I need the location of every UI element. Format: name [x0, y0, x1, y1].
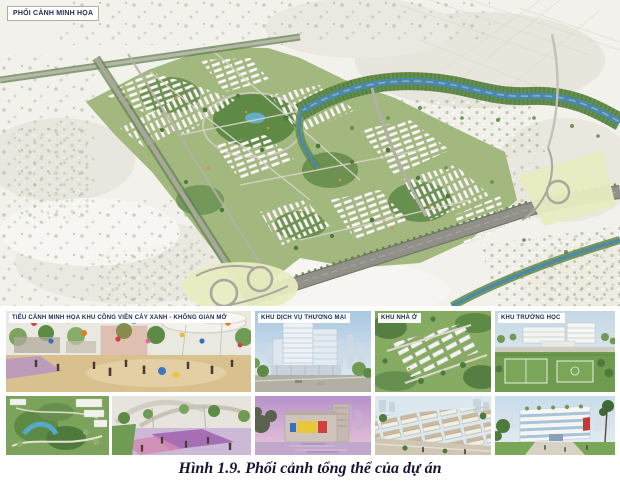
panel-label-commercial: KHU DỊCH VỤ THƯƠNG MẠI: [258, 313, 350, 323]
parks-playground-illustration: [6, 311, 251, 392]
commercial-towers-image: [255, 311, 371, 392]
school-campus-illustration: [495, 311, 615, 392]
housing-street-image: [375, 396, 491, 455]
masterplan-aerial-render: [0, 0, 620, 306]
masterplan-illustration: [0, 0, 620, 306]
housing-aerial-image: [375, 311, 491, 392]
school-building: [520, 405, 590, 443]
panel-label-housing: KHU NHÀ Ở: [378, 313, 421, 323]
figure-caption: Hình 1.9. Phối cảnh tổng thể của dự án: [0, 460, 620, 478]
parks-plaza-illustration: [112, 396, 251, 455]
panel-label-school: KHU TRƯỜNG HỌC: [498, 313, 565, 323]
figure-page: PHỐI CẢNH MINH HỌA TIỂU CẢNH MINH HỌA KH…: [0, 0, 620, 487]
commercial-mall-image: [255, 396, 371, 455]
commercial-towers-illustration: [255, 311, 371, 392]
parks-playground-image: [6, 311, 251, 392]
parks-plaza-image: [112, 396, 251, 455]
housing-aerial-illustration: [375, 311, 491, 392]
school-campus-image: [495, 311, 615, 392]
panel-label-parks: TIỂU CẢNH MINH HỌA KHU CÔNG VIÊN CÂY XAN…: [9, 313, 231, 323]
parks-aerial-image: [6, 396, 109, 455]
commercial-mall-illustration: [255, 396, 371, 455]
school-building-illustration: [495, 396, 615, 455]
main-render-label: PHỐI CẢNH MINH HỌA: [7, 6, 99, 21]
parks-aerial-illustration: [6, 396, 109, 455]
housing-street-illustration: [375, 396, 491, 455]
school-building-image: [495, 396, 615, 455]
